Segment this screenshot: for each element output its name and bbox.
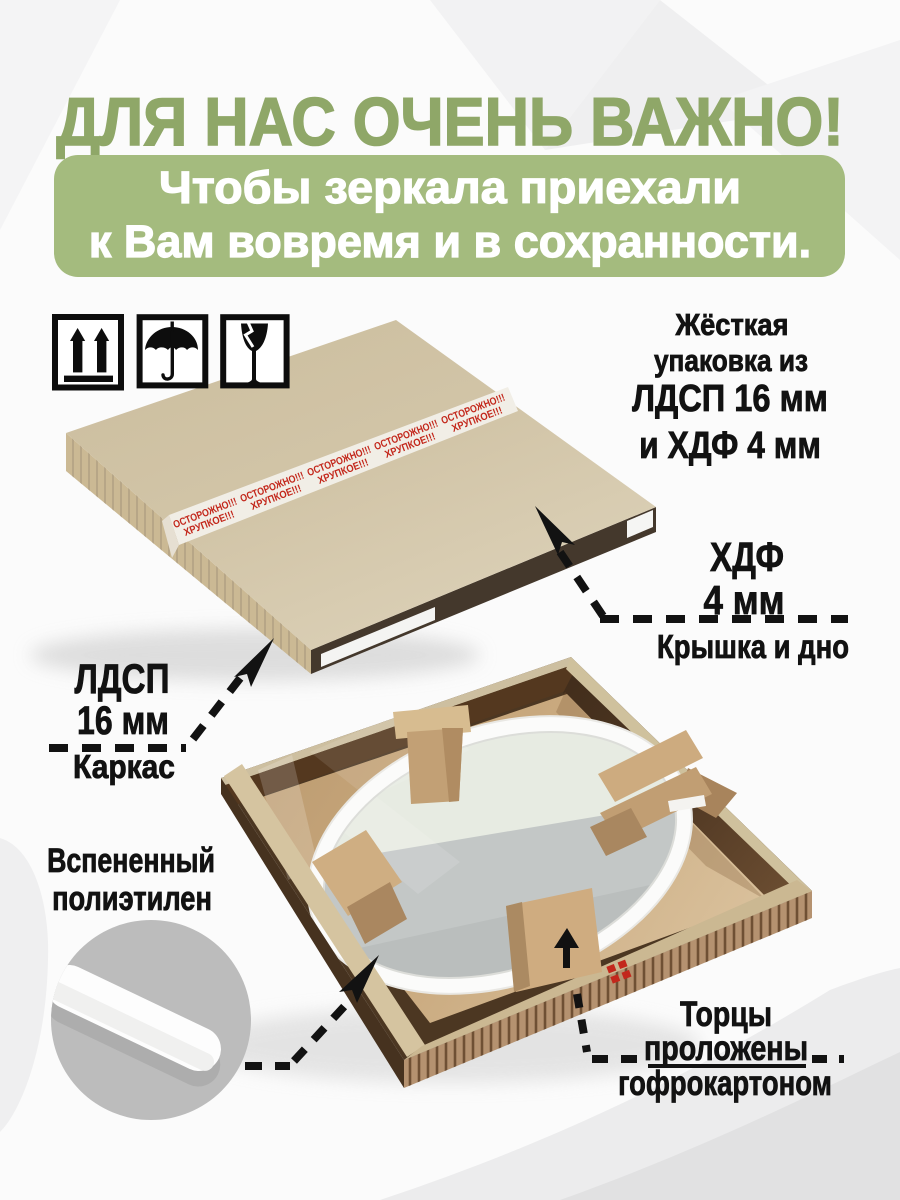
svg-text:гофрокартоном: гофрокартоном xyxy=(618,1064,832,1103)
svg-text:Каркас: Каркас xyxy=(73,748,175,786)
svg-text:полиэтилен: полиэтилен xyxy=(52,879,212,918)
svg-text:Вспененный: Вспененный xyxy=(47,842,215,880)
svg-text:Жёсткая: Жёсткая xyxy=(675,308,789,342)
svg-text:Чтобы зеркала приехали: Чтобы зеркала приехали xyxy=(159,162,741,213)
svg-text:ДЛЯ НАС ОЧЕНЬ ВАЖНО!: ДЛЯ НАС ОЧЕНЬ ВАЖНО! xyxy=(56,83,843,160)
svg-text:ЛДСП: ЛДСП xyxy=(75,656,170,703)
svg-text:к Вам вовремя и в сохранности.: к Вам вовремя и в сохранности. xyxy=(89,216,811,267)
svg-text:и ХДФ 4 мм: и ХДФ 4 мм xyxy=(639,424,821,466)
svg-text:упаковка из: упаковка из xyxy=(654,344,808,379)
svg-text:16 мм: 16 мм xyxy=(77,698,169,743)
svg-text:ЛДСП 16 мм: ЛДСП 16 мм xyxy=(632,377,828,420)
svg-text:проложены: проложены xyxy=(644,1028,808,1067)
svg-text:ХДФ: ХДФ xyxy=(710,534,784,580)
svg-text:Крышка и дно: Крышка и дно xyxy=(657,630,849,666)
